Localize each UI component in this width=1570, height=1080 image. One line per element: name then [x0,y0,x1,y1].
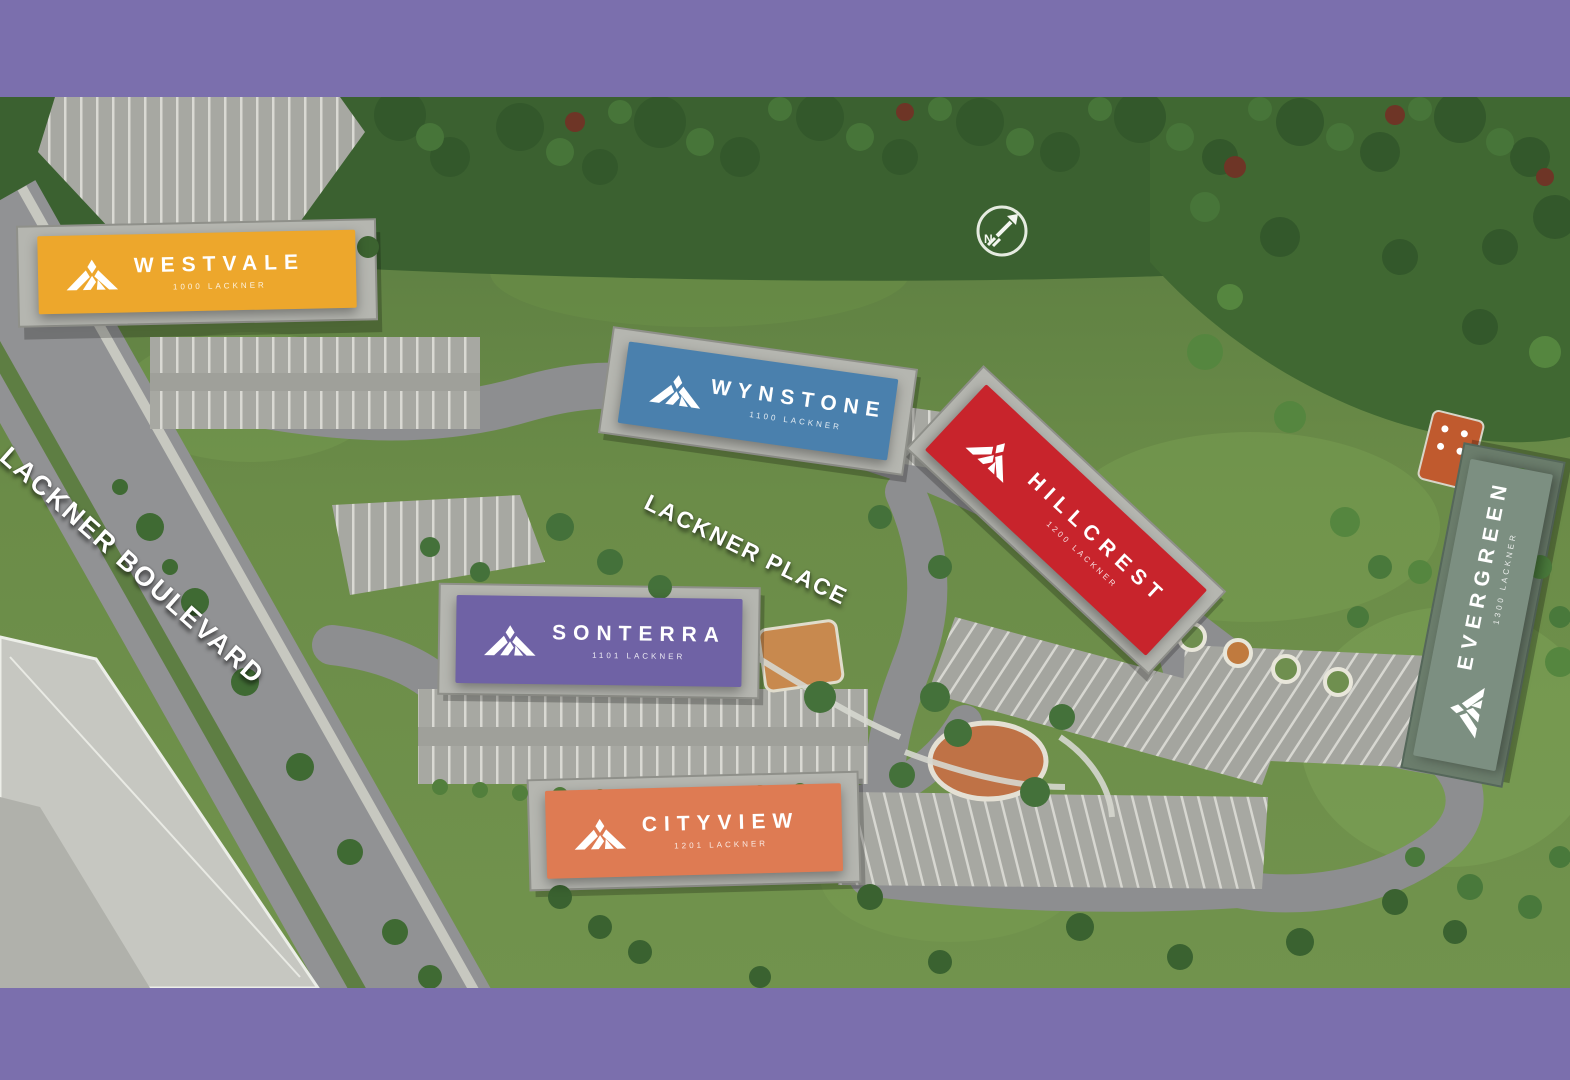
building-address: 1101 LACKNER [592,651,685,661]
letterbox-top [0,0,1570,97]
brand-logo-icon [1440,679,1490,742]
building-banner-westvale[interactable]: WESTVALE 1000 LACKNER [37,230,357,315]
building-name: CITYVIEW [642,809,800,837]
building-address: 1000 LACKNER [173,281,267,292]
brand-logo-icon [572,813,629,854]
building-address: 1201 LACKNER [674,839,768,850]
letterbox-bottom [0,988,1570,1080]
brand-logo-icon [64,254,121,295]
building-name: WESTVALE [134,251,306,279]
building-name: SONTERRA [552,621,726,647]
site-plan-map: LACKNER BOULEVARD LACKNER PLACE N WESTVA… [0,97,1570,988]
building-banner-sonterra[interactable]: SONTERRA 1101 LACKNER [455,595,742,687]
compass-n-label: N [984,232,993,246]
site-plan-page: LACKNER BOULEVARD LACKNER PLACE N WESTVA… [0,0,1570,1080]
north-arrow: N [973,202,1031,260]
brand-logo-icon [482,619,539,660]
building-banner-cityview[interactable]: CITYVIEW 1201 LACKNER [545,783,843,879]
brand-logo-icon [961,420,1029,487]
compass-icon: N [973,202,1031,260]
brand-logo-icon [646,366,707,413]
